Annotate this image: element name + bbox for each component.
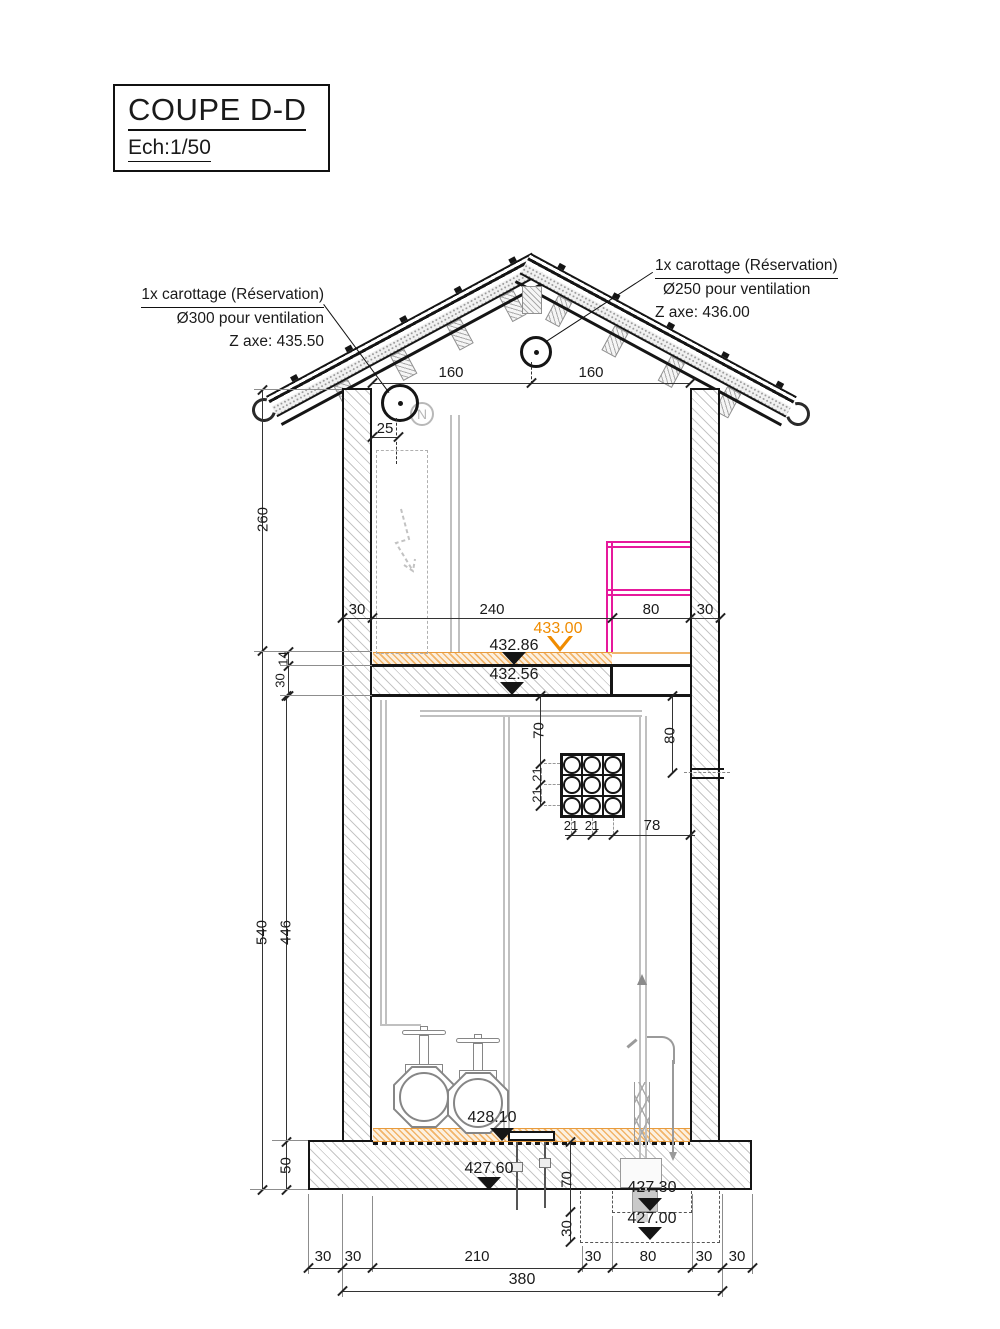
- ext-line: [612, 1216, 613, 1272]
- ext-line: [254, 389, 342, 390]
- pump-side-pipe: [672, 1060, 674, 1155]
- pipe-penetration-grid: [560, 753, 625, 818]
- gate-valve-2-stem: [473, 1043, 483, 1071]
- dim-pit-depth2: 30: [560, 1216, 575, 1242]
- level-43256-marker: [500, 682, 524, 695]
- drawing-scale: Ech:1/50: [128, 136, 211, 162]
- foundation-slab: [308, 1140, 752, 1190]
- duct-side-line: [606, 541, 608, 652]
- annotation-left-line3: Z axe: 435.50: [229, 333, 324, 350]
- dim-grid-row1: 21: [531, 765, 544, 785]
- level-42700-label: 427.00: [622, 1211, 682, 1227]
- dim-mid-1: 240: [462, 602, 522, 617]
- ridge-beam: [522, 286, 542, 314]
- wall-right: [690, 388, 720, 1140]
- pump-arrow-down: [669, 1152, 677, 1161]
- grid-ref-dash: [544, 763, 560, 764]
- level-42810-label: 428.10: [462, 1110, 522, 1126]
- membrane-dotted-line: [373, 1142, 690, 1145]
- duct-shelf-line-2: [606, 594, 690, 596]
- duct-side-line-2: [611, 541, 613, 652]
- north-letter: N: [417, 406, 427, 422]
- pump-elbow: [647, 1036, 675, 1064]
- level-433-marker: [547, 636, 573, 652]
- ext-line: [272, 1140, 308, 1141]
- riser-pipe: [458, 415, 460, 652]
- dim-room-height: 446: [279, 916, 294, 950]
- dim-bottom-6: 30: [722, 1249, 752, 1264]
- dim-grid-top: 70: [532, 717, 547, 745]
- dim-sleeve-drop: 80: [663, 723, 678, 749]
- dim-mid-3: 30: [690, 602, 720, 617]
- dim-vent-offset: 25: [371, 421, 399, 436]
- pump-lattice: [634, 1082, 650, 1142]
- level-433-label: 433.00: [528, 621, 588, 637]
- dim-mid-line: [342, 618, 720, 619]
- pipe-fitting: [539, 1158, 551, 1168]
- duct-shelf-line: [606, 589, 690, 591]
- dim-bottom-4: 80: [628, 1249, 668, 1264]
- dim-total-width: 380: [502, 1272, 542, 1288]
- dim-pit-depth1: 70: [560, 1167, 575, 1193]
- ext-line: [752, 1194, 753, 1274]
- dim-bottom-1: 30: [338, 1249, 368, 1264]
- annotation-left: 1x carottage (Réservation) Ø300 pour ven…: [113, 284, 324, 353]
- level-42810-marker: [490, 1128, 514, 1141]
- slab-bottom-edge: [372, 694, 690, 697]
- ext-line: [280, 695, 372, 696]
- dim-grid-col1: 21: [561, 819, 581, 832]
- drawing-title: COUPE D-D: [128, 92, 306, 131]
- annotation-right: 1x carottage (Réservation) Ø250 pour ven…: [655, 255, 885, 324]
- dim-total-line: [342, 1291, 723, 1292]
- dim-bottom-2: 210: [447, 1249, 507, 1264]
- ext-line: [342, 1194, 343, 1297]
- dim-bottom-5: 30: [689, 1249, 719, 1264]
- dim-mid-0: 30: [342, 602, 372, 617]
- gate-valve-1-body: [399, 1072, 449, 1122]
- wall-sleeve-line-2: [690, 777, 724, 779]
- valve-supply-elbow: [381, 1024, 421, 1026]
- drop-pipe-drain: [503, 716, 505, 1130]
- annotation-left-line2: Ø300 pour ventilation: [177, 310, 324, 327]
- dim-grid-hline: [565, 835, 695, 836]
- dim-grid-to-wall: 78: [638, 818, 666, 833]
- lightning-symbol: [383, 505, 423, 587]
- duct-top-line-2: [606, 546, 690, 548]
- level-43256-label: 432.56: [484, 667, 544, 683]
- pit-pipe-2: [544, 1142, 546, 1208]
- dim-total-height: 540: [255, 916, 270, 950]
- drop-pipe-drain-2: [508, 716, 510, 1130]
- annotation-right-line1: 1x carottage (Réservation): [655, 255, 838, 279]
- annotation-left-line1: 1x carottage (Réservation): [141, 284, 324, 308]
- ext-line: [250, 1189, 308, 1190]
- wall-left: [342, 388, 372, 1140]
- ext-line: [280, 665, 372, 666]
- ext-line: [372, 1196, 373, 1272]
- drawing-sheet: COUPE D-D Ech:1/50: [0, 0, 1000, 1329]
- gate-valve-1-stem: [419, 1035, 429, 1065]
- valve-supply-pipe: [380, 700, 382, 1026]
- duct-top-line: [606, 541, 690, 543]
- floor-drain: [508, 1131, 555, 1141]
- title-block: COUPE D-D Ech:1/50: [113, 84, 330, 172]
- upper-screed-line: [612, 652, 690, 654]
- dim-bottom-line: [308, 1268, 753, 1269]
- annotation-right-line3: Z axe: 436.00: [655, 304, 750, 321]
- level-43286-marker: [502, 652, 526, 665]
- ext-line: [722, 1194, 723, 1297]
- dim-roof-left: 160: [431, 365, 471, 380]
- pump-arrow-up: [637, 974, 647, 985]
- dim-bottom-3: 30: [578, 1249, 608, 1264]
- grid-ref-dash: [544, 784, 560, 785]
- level-42760-label: 427.60: [459, 1161, 519, 1177]
- gate-valve-2-post: [474, 1034, 482, 1039]
- wall-sleeve-line: [690, 768, 724, 770]
- level-42760-marker: [477, 1177, 501, 1190]
- dim-mid-2: 80: [631, 602, 671, 617]
- grid-ref-dash: [544, 805, 560, 806]
- gate-valve-1-post: [420, 1026, 428, 1031]
- level-42730-label: 427.30: [622, 1180, 682, 1196]
- annotation-right-line2: Ø250 pour ventilation: [663, 281, 810, 298]
- riser-pipe: [450, 415, 452, 652]
- ceiling-pipe: [420, 710, 642, 712]
- dim-bottom-0: 30: [308, 1249, 338, 1264]
- dim-foundation: 50: [279, 1152, 294, 1180]
- wall-sleeve-axis: [684, 772, 730, 773]
- dim-upper-storey: 260: [256, 503, 271, 537]
- valve-supply-pipe-2: [385, 700, 387, 1026]
- level-42700-marker: [638, 1227, 662, 1240]
- dim-grid-row2: 21: [531, 786, 544, 806]
- dim-grid-col2: 21: [582, 819, 602, 832]
- dim-slab-thk: 30: [274, 669, 287, 693]
- ext-line: [254, 651, 372, 652]
- pump-handle: [626, 1038, 637, 1048]
- slab-opening-edge: [610, 666, 613, 696]
- dim-roof-right: 160: [571, 365, 611, 380]
